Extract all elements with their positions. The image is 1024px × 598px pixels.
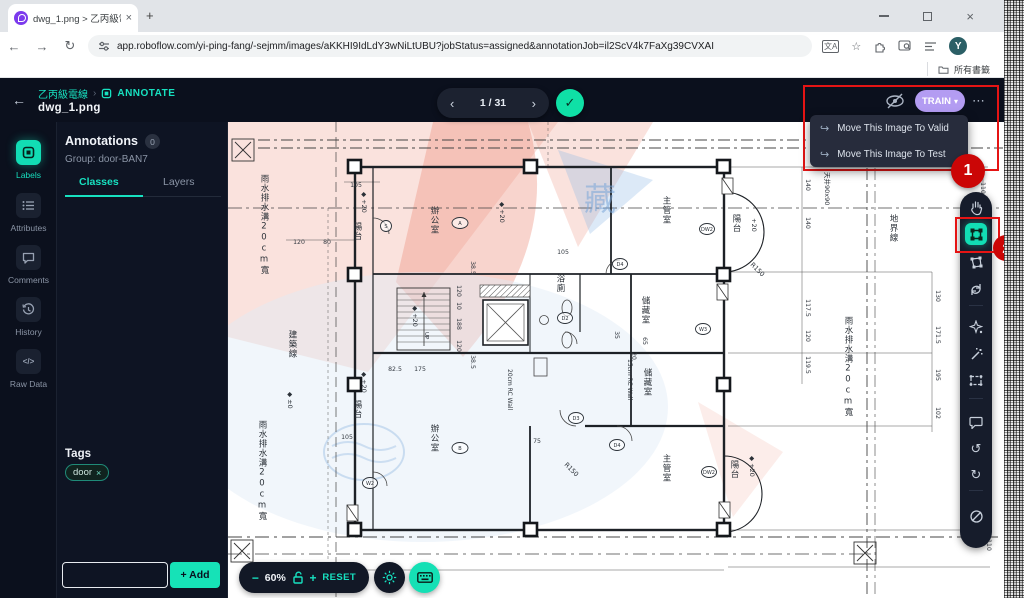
plan-ref-symbol: W3 bbox=[696, 324, 711, 335]
svg-text:W3: W3 bbox=[699, 327, 707, 333]
plan-dimension: 120 bbox=[293, 239, 305, 246]
annotations-panel: Annotations 0 Group: door-BAN7 Classes L… bbox=[57, 122, 228, 598]
rail-label: Comments bbox=[0, 275, 57, 285]
rail-item-labels[interactable]: Labels bbox=[0, 140, 57, 180]
tab-list-icon[interactable] bbox=[924, 41, 937, 52]
svg-text:S: S bbox=[384, 224, 387, 230]
new-tab-button[interactable]: + bbox=[146, 8, 154, 23]
tab-title: dwg_1.png > 乙丙級電線 bbox=[33, 11, 121, 25]
rail-item-history[interactable]: History bbox=[0, 297, 57, 337]
plan-label: 天井90x90 bbox=[823, 172, 832, 205]
window-minimize-icon[interactable] bbox=[879, 15, 889, 17]
annotate-tag-icon bbox=[101, 88, 112, 99]
svg-text:W2: W2 bbox=[366, 481, 374, 487]
plan-label: ◆ +20 bbox=[748, 456, 756, 477]
plan-dimension: 102 bbox=[934, 407, 941, 419]
site-settings-icon[interactable] bbox=[98, 40, 110, 52]
brightness-button[interactable] bbox=[374, 562, 405, 593]
plan-ref-symbol: DW2 bbox=[700, 224, 715, 235]
plan-label: UP bbox=[423, 332, 429, 340]
unlock-icon[interactable] bbox=[292, 571, 304, 584]
move-arrow-icon: ↪ bbox=[820, 148, 829, 161]
plan-label: 陽台 bbox=[731, 214, 741, 233]
plan-ref-symbol: D4 bbox=[613, 259, 628, 270]
plan-label: 建築線 bbox=[287, 329, 297, 358]
plan-dimension: 35 bbox=[613, 331, 620, 339]
forward-icon[interactable]: → bbox=[28, 39, 56, 54]
rail-label: Labels bbox=[0, 170, 57, 180]
plan-dimension: 171.5 bbox=[934, 326, 941, 344]
plan-label: 辦公室 bbox=[429, 205, 439, 234]
plan-label: 浴廁 bbox=[555, 273, 565, 293]
plan-dimension: 120 bbox=[455, 285, 462, 297]
plan-label: R150 bbox=[749, 261, 767, 279]
plan-ref-symbol: A bbox=[452, 218, 468, 229]
new-tag-input[interactable] bbox=[62, 562, 168, 588]
folder-icon bbox=[938, 65, 949, 74]
plan-label: ◆ ±0 bbox=[286, 392, 294, 409]
breadcrumb: 乙丙級電線 › ANNOTATE bbox=[38, 86, 175, 101]
hide-annotations-icon[interactable] bbox=[884, 91, 906, 111]
search-tabs-icon[interactable] bbox=[898, 40, 912, 52]
browser-tabstrip: dwg_1.png > 乙丙級電線 × + × bbox=[0, 0, 1004, 32]
plan-label: 15cm RC Wall bbox=[626, 359, 633, 401]
comments-icon[interactable] bbox=[16, 245, 41, 270]
roboflow-favicon bbox=[14, 11, 28, 25]
menu-item-label: Move This Image To Test bbox=[837, 149, 945, 160]
plan-label: +20 bbox=[750, 218, 758, 232]
move-arrow-icon: ↪ bbox=[820, 122, 829, 135]
labels-icon[interactable] bbox=[16, 140, 41, 165]
polygon-tool-icon[interactable] bbox=[960, 250, 992, 274]
url-text[interactable]: app.roboflow.com/yi-ping-fang/-sejmm/ima… bbox=[117, 41, 714, 52]
annotations-count-badge: 0 bbox=[145, 134, 160, 149]
file-name: dwg_1.png bbox=[38, 102, 101, 114]
tool-divider bbox=[969, 305, 983, 306]
plan-ref-symbol: B bbox=[452, 443, 468, 454]
plan-dimension: 105 bbox=[341, 434, 353, 441]
plan-dimension: 140 bbox=[804, 217, 811, 229]
tabs-underline-active bbox=[65, 195, 143, 197]
menu-item-move-test[interactable]: ↪ Move This Image To Test bbox=[810, 141, 968, 167]
translate-icon[interactable]: 文A bbox=[822, 40, 839, 53]
redo-icon[interactable]: ↻ bbox=[960, 463, 992, 487]
floorplan-drawing: 雨水排水溝20cm寬雨水排水溝20cm寬建築線陽台◆ +20陽台◆ +20辦公室… bbox=[228, 122, 1003, 598]
plan-label: ◆ +20 bbox=[360, 372, 368, 393]
plan-dimension: 117.5 bbox=[804, 299, 811, 317]
plan-label: 主管室 bbox=[661, 453, 671, 482]
plan-label: 地界線 bbox=[888, 213, 898, 242]
plan-dimension: 105 bbox=[557, 249, 569, 256]
back-icon[interactable]: ← bbox=[0, 39, 28, 54]
magic-wand-icon[interactable] bbox=[960, 342, 992, 366]
left-rail: Labels Attributes Comments History </> R… bbox=[0, 122, 57, 598]
attributes-icon[interactable] bbox=[16, 193, 41, 218]
raw-data-icon[interactable]: </> bbox=[16, 349, 41, 374]
add-tag-button[interactable]: + Add bbox=[170, 562, 220, 588]
plan-dimension: 119.5 bbox=[804, 356, 811, 374]
plan-dimension: 120 bbox=[455, 340, 462, 352]
zoom-controls: − 60% + RESET bbox=[239, 562, 369, 593]
rail-item-rawdata[interactable]: </> Raw Data bbox=[0, 349, 57, 389]
plan-label: 儲藏室 bbox=[640, 295, 650, 324]
plan-label: 雨水排水溝20cm寬 bbox=[259, 174, 269, 275]
plan-label: 陽台 bbox=[352, 400, 362, 419]
window-close-icon[interactable]: × bbox=[966, 9, 974, 24]
plan-label: 陽台 bbox=[352, 222, 362, 241]
keyboard-shortcuts-button[interactable] bbox=[409, 562, 440, 593]
plan-ref-symbol: D2 bbox=[558, 313, 573, 324]
image-more-icon[interactable]: ⋯ bbox=[972, 93, 986, 109]
menu-item-move-valid[interactable]: ↪ Move This Image To Valid bbox=[810, 115, 968, 141]
zoom-in-icon[interactable]: + bbox=[309, 571, 316, 585]
plan-dimension: 82.5 bbox=[388, 366, 402, 373]
smart-polygon-icon[interactable] bbox=[960, 315, 992, 339]
rail-label: Raw Data bbox=[0, 379, 57, 389]
plan-label: 陽台 bbox=[729, 460, 739, 479]
null-annotation-icon[interactable] bbox=[960, 504, 992, 528]
tab-close-icon[interactable]: × bbox=[126, 12, 132, 24]
train-split-button[interactable]: TRAIN ▾ bbox=[915, 90, 965, 112]
plan-label: 儲藏室 bbox=[642, 367, 652, 396]
svg-text:A: A bbox=[458, 221, 462, 227]
undo-icon[interactable]: ↺ bbox=[960, 437, 992, 461]
page-indicator: 1 / 31 bbox=[480, 97, 506, 109]
browser-tab[interactable]: dwg_1.png > 乙丙級電線 × bbox=[8, 4, 138, 32]
menu-item-label: Move This Image To Valid bbox=[837, 123, 949, 134]
svg-text:D4: D4 bbox=[613, 443, 620, 449]
plan-dimension: 175 bbox=[414, 366, 426, 373]
zoom-out-icon[interactable]: − bbox=[252, 571, 259, 585]
plan-label: ◆ +20 bbox=[411, 306, 419, 327]
plan-ref-symbol: D3 bbox=[569, 413, 584, 424]
breadcrumb-separator: › bbox=[93, 88, 96, 99]
prev-image-icon[interactable]: ‹ bbox=[450, 96, 454, 111]
breadcrumb-annotate[interactable]: ANNOTATE bbox=[117, 88, 175, 99]
plan-ref-symbol: D4 bbox=[610, 440, 625, 451]
svg-text:DW2: DW2 bbox=[701, 227, 713, 233]
plan-dimension: 65 bbox=[641, 337, 648, 345]
plan-label: ◆ +20 bbox=[498, 202, 506, 223]
svg-text:D4: D4 bbox=[616, 262, 623, 268]
plan-dimension: 75 bbox=[533, 438, 541, 445]
plan-dimension: 38.5 bbox=[469, 261, 476, 275]
url-bar[interactable]: app.roboflow.com/yi-ping-fang/-sejmm/ima… bbox=[88, 35, 812, 57]
history-icon[interactable] bbox=[16, 297, 41, 322]
tab-classes[interactable]: Classes bbox=[79, 176, 119, 188]
plan-dimension: 20 bbox=[630, 352, 637, 360]
rail-item-attributes[interactable]: Attributes bbox=[0, 193, 57, 233]
approve-button[interactable]: ✓ bbox=[556, 89, 584, 117]
plan-dimension: 10 bbox=[455, 302, 462, 310]
chevron-down-icon: ▾ bbox=[954, 97, 958, 106]
browser-toolbar: ← → ↻ app.roboflow.com/yi-ping-fang/-sej… bbox=[0, 32, 1004, 60]
profile-avatar[interactable]: Y bbox=[949, 37, 967, 55]
tab-layers[interactable]: Layers bbox=[163, 176, 195, 188]
plan-dimension: 120 bbox=[804, 330, 811, 342]
tool-divider bbox=[969, 490, 983, 491]
screenshot-root: dwg_1.png > 乙丙級電線 × + × ← → ↻ app.robofl… bbox=[0, 0, 1024, 598]
plan-dimension: 188 bbox=[455, 318, 462, 330]
tag-remove-icon[interactable]: × bbox=[96, 468, 101, 478]
plan-label: ◆ +20 bbox=[360, 192, 368, 213]
tags-title: Tags bbox=[65, 448, 91, 460]
svg-text:B: B bbox=[458, 446, 462, 452]
reload-icon[interactable]: ↻ bbox=[56, 38, 84, 54]
plan-dimension: 130 bbox=[934, 290, 941, 302]
svg-text:DW2: DW2 bbox=[703, 470, 715, 476]
extensions-icon[interactable] bbox=[873, 40, 886, 53]
image-pager: ‹ 1 / 31 › bbox=[437, 88, 549, 118]
annotation-group: Group: door-BAN7 bbox=[65, 154, 148, 165]
rail-label: History bbox=[0, 327, 57, 337]
all-bookmarks-label: 所有書籤 bbox=[954, 63, 990, 76]
bookmark-star-icon[interactable]: ☆ bbox=[851, 40, 861, 53]
tag-label: door bbox=[73, 467, 92, 478]
bookmarks-bar: 所有書籤 bbox=[0, 60, 1004, 78]
screen-edge-artifact bbox=[1004, 0, 1024, 598]
window-controls: × bbox=[879, 0, 974, 32]
comment-tool-icon[interactable] bbox=[960, 410, 992, 434]
rail-label: Attributes bbox=[0, 223, 57, 233]
repeat-previous-icon[interactable] bbox=[960, 277, 992, 301]
plan-dimension: 105 bbox=[350, 182, 362, 189]
tag-door[interactable]: door × bbox=[65, 464, 109, 481]
plan-ref-symbol: S bbox=[381, 221, 392, 232]
tool-divider bbox=[969, 398, 983, 399]
plan-dimension: 80 bbox=[323, 239, 331, 246]
reset-zoom-button[interactable]: RESET bbox=[322, 572, 356, 583]
breadcrumb-project[interactable]: 乙丙級電線 bbox=[38, 86, 88, 101]
plan-label: 雨水排水溝20cm寬 bbox=[843, 316, 853, 417]
browser-action-icons: 文A ☆ Y bbox=[822, 37, 979, 55]
plan-label: 主管室 bbox=[661, 195, 671, 224]
plan-ref-symbol: DW2 bbox=[702, 467, 717, 478]
annotation-canvas[interactable]: 雨水排水溝20cm寬雨水排水溝20cm寬建築線陽台◆ +20陽台◆ +20辦公室… bbox=[228, 122, 1003, 598]
annotations-title: Annotations bbox=[65, 134, 138, 148]
plan-dimension: 140 bbox=[804, 179, 811, 191]
smart-rect-icon[interactable] bbox=[960, 368, 992, 392]
svg-text:D3: D3 bbox=[572, 416, 579, 422]
plan-dimension: 38.5 bbox=[469, 355, 476, 369]
svg-text:D2: D2 bbox=[561, 316, 568, 322]
callout-badge-1: 1 bbox=[951, 154, 985, 188]
plan-label: 20cm RC Wall bbox=[506, 369, 513, 411]
panel-tabs: Classes Layers bbox=[57, 172, 228, 198]
plan-label: 藏 bbox=[584, 180, 616, 218]
train-label: TRAIN bbox=[922, 96, 951, 107]
plan-label: 辦公室 bbox=[429, 423, 439, 452]
all-bookmarks[interactable]: 所有書籤 bbox=[927, 62, 990, 76]
plan-ref-symbol: W2 bbox=[363, 478, 378, 489]
plan-dimension: 195 bbox=[934, 369, 941, 381]
window-maximize-icon[interactable] bbox=[923, 12, 932, 21]
split-dropdown-menu: ↪ Move This Image To Valid ↪ Move This I… bbox=[810, 115, 968, 167]
zoom-level: 60% bbox=[265, 572, 286, 584]
next-image-icon[interactable]: › bbox=[532, 96, 536, 111]
plan-label: 雨水排水溝20cm寬 bbox=[257, 420, 267, 521]
app-back-icon[interactable]: ← bbox=[12, 92, 26, 108]
rail-item-comments[interactable]: Comments bbox=[0, 245, 57, 285]
